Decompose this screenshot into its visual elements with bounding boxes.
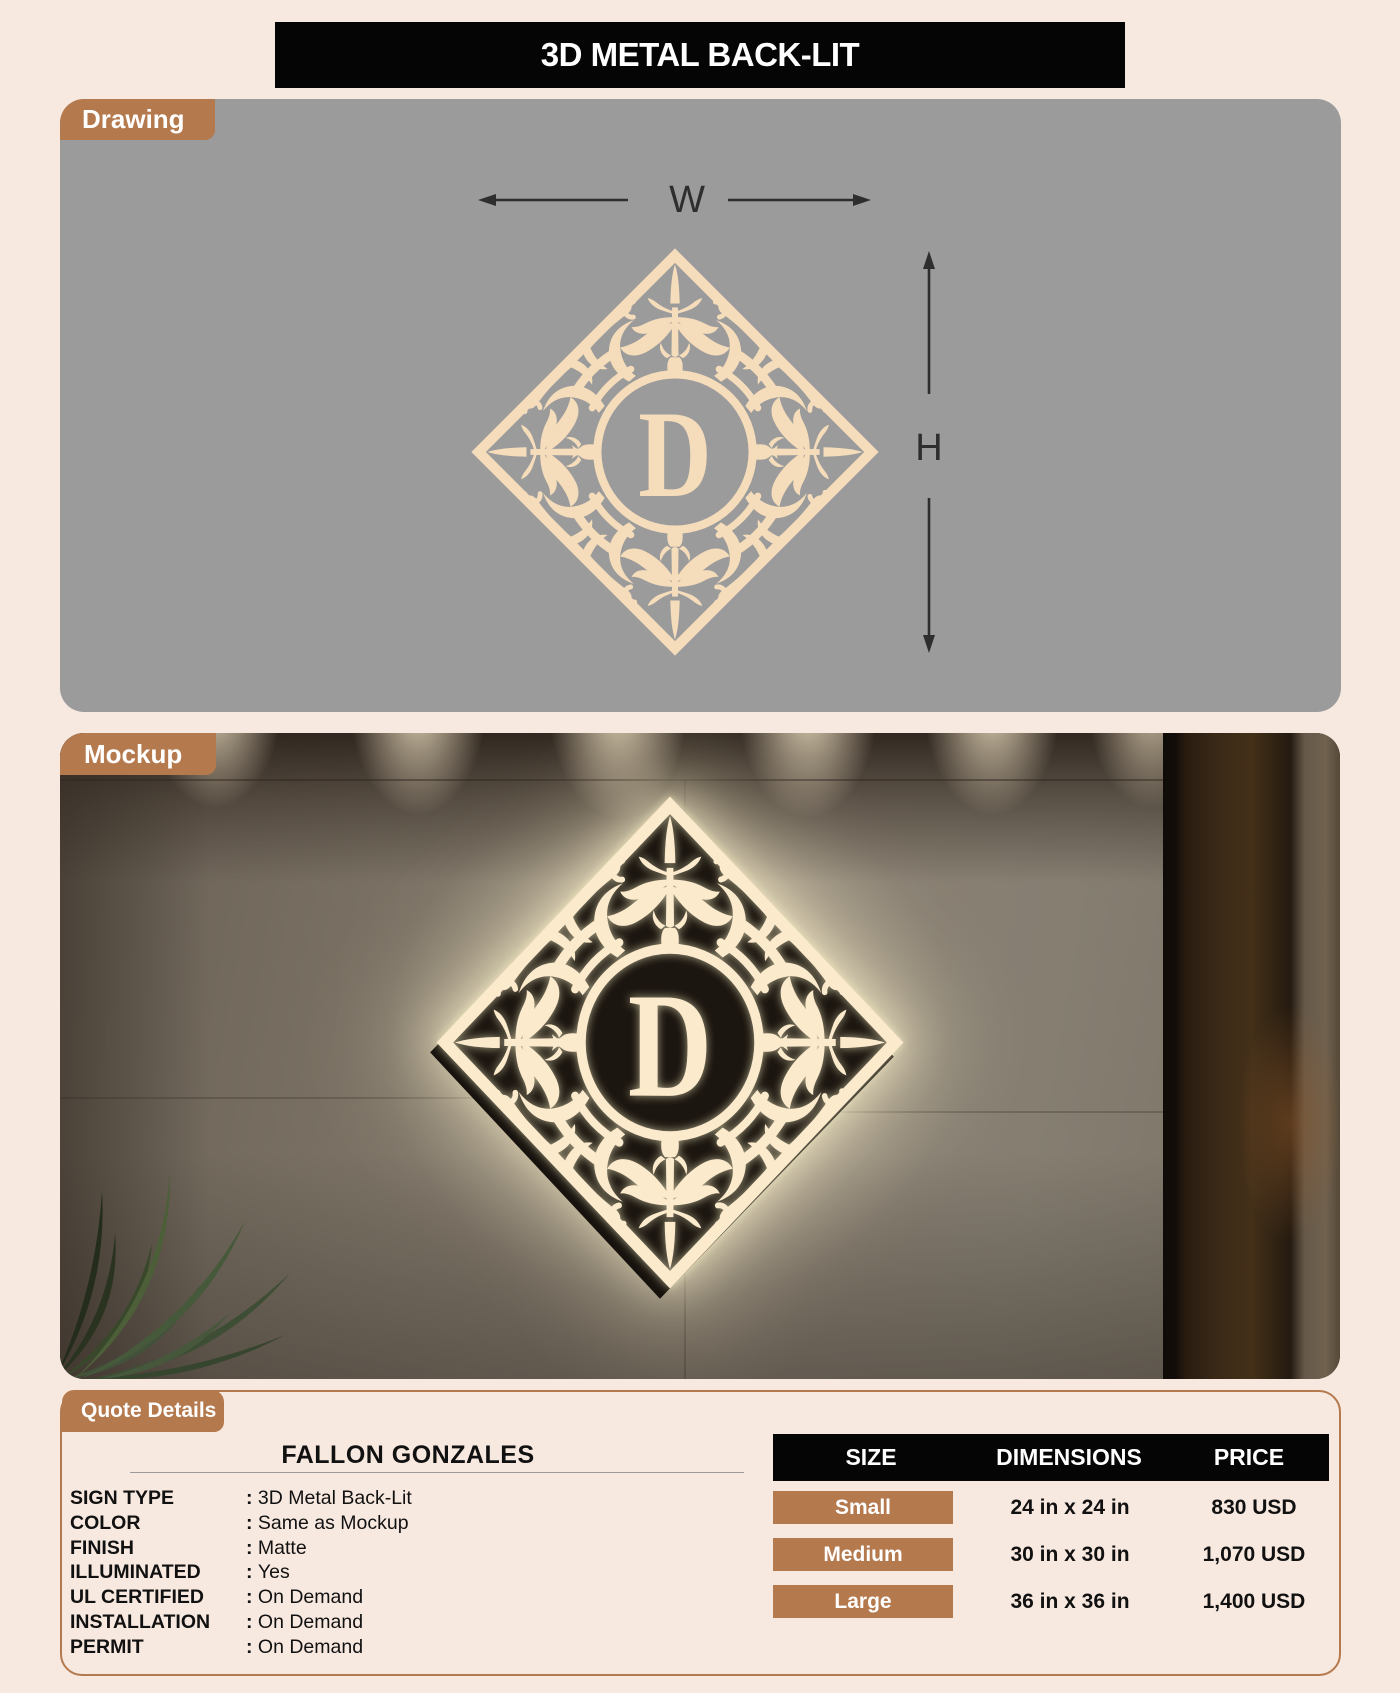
svg-text:W: W: [669, 179, 705, 221]
svg-text:H: H: [915, 427, 942, 469]
